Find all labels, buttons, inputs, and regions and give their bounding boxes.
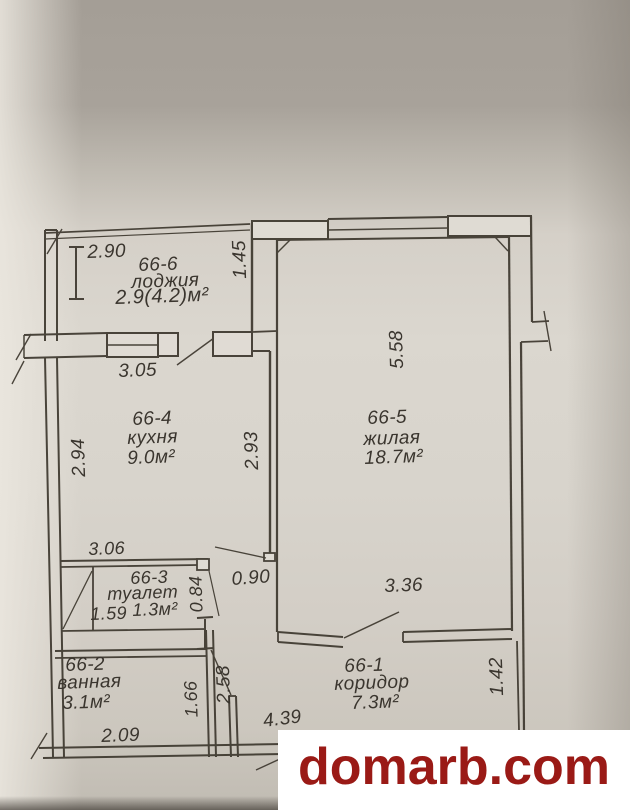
tick-mark <box>544 311 551 351</box>
dim-toilet-depth: 0.84 <box>186 564 206 625</box>
living-door-swing <box>344 612 399 638</box>
dim-toilet-wall: 3.06 <box>88 539 125 558</box>
room-living-area: 18.7м² <box>364 447 423 468</box>
room-toilet-area: 1.3м² <box>132 599 178 619</box>
room-kitchen-name: кухня <box>127 427 178 448</box>
tick-mark <box>12 361 24 384</box>
kitchen-window <box>107 333 158 357</box>
room-loggia-area: 2.9(4.2)м² <box>115 285 209 308</box>
dim-living-depth: 5.58 <box>386 319 407 380</box>
dim-corridor-right: 1.42 <box>486 646 507 707</box>
dim-kitchen-right: 2.93 <box>241 420 262 481</box>
dimension-bar <box>69 247 84 299</box>
dim-bath-bottom: 2.09 <box>101 726 140 746</box>
dim-toilet-width: 1.59 <box>90 604 127 623</box>
balcony-door-swing <box>177 338 214 365</box>
dim-kitchen-door: 0.90 <box>231 567 271 589</box>
dim-bath-right: 1.66 <box>181 669 201 730</box>
dim-loggia-depth: 1.45 <box>229 229 250 290</box>
living-room-walls <box>252 216 551 731</box>
floor-plan-photo: 66-6 лоджия 2.9(4.2)м² 66-4 кухня 9.0м² … <box>0 0 630 810</box>
dim-kitchen-window-wall: 3.05 <box>118 361 157 381</box>
room-bathroom-name: ванная <box>57 672 122 693</box>
watermark-text: domarb.com <box>298 737 610 797</box>
dim-loggia-width: 2.90 <box>87 242 126 262</box>
dim-living-bottom: 3.36 <box>384 576 423 596</box>
room-living-number: 66-5 <box>367 408 407 428</box>
room-kitchen-area: 9.0м² <box>127 447 175 468</box>
kitchen-door-swing <box>215 547 266 558</box>
living-window <box>328 228 448 230</box>
watermark-bar: domarb.com <box>278 730 630 810</box>
tick-mark <box>31 733 47 759</box>
room-corridor-area: 7.3м² <box>351 692 399 713</box>
room-bathroom-area: 3.1м² <box>62 692 110 713</box>
dim-corridor-left: 2.58 <box>213 654 234 715</box>
dim-kitchen-left: 2.94 <box>68 427 89 488</box>
dim-corridor-bottom: 4.39 <box>262 707 303 731</box>
